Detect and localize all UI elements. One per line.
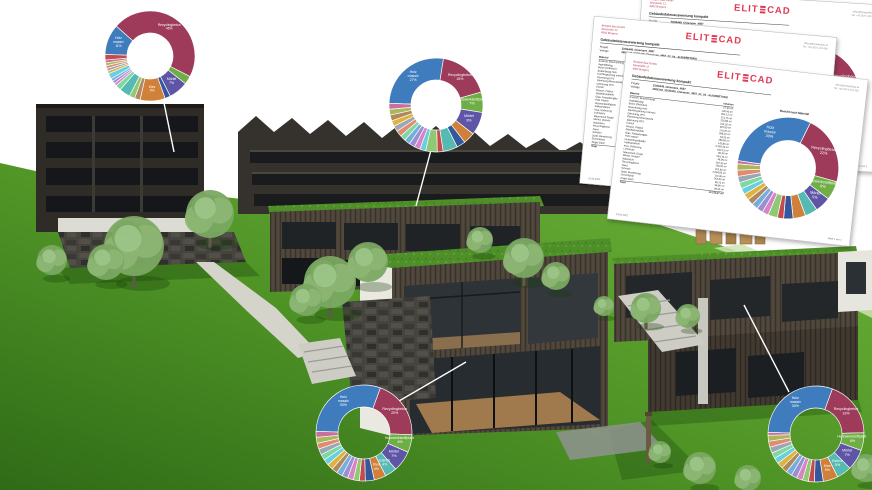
donut-segment (768, 432, 790, 435)
donut-segment (768, 386, 832, 433)
donut-chart-bottom-right: Holzmassiv30%Recyclingbeton19%Holzwerkst… (766, 384, 866, 484)
donut-chart-bottom-left: Holzmassiv30%Recyclingbeton20%Holzwerkst… (314, 383, 414, 483)
donut-chart-middle: Holzmassiv27%Recyclingbeton18%Holzwerkst… (387, 56, 485, 154)
donut-chart-top-left: Holzmassiv11%Recyclingbeton46%Mörtel7%Ki… (103, 9, 197, 103)
donut-segment (316, 385, 380, 432)
marketing-image: Beispiel Bau GmbH Seestraße 12 6900 Breg… (0, 0, 872, 490)
